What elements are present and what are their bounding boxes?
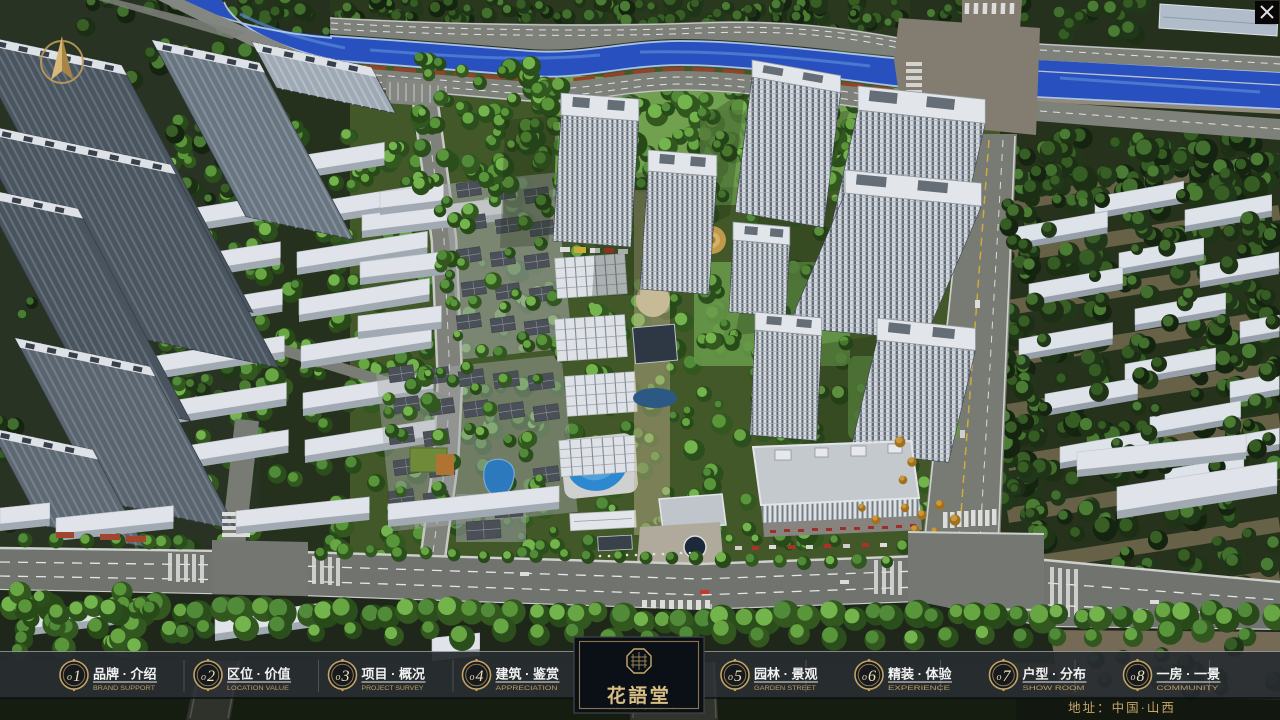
svg-text:F L O W E R C O U R T: F L O W E R C O U R T: [602, 706, 676, 711]
svg-text:COMMUNITY: COMMUNITY: [1157, 686, 1219, 692]
svg-text:LOCATION VALUE: LOCATION VALUE: [227, 686, 289, 692]
svg-text:o: o: [470, 672, 475, 683]
svg-text:3: 3: [341, 668, 350, 685]
svg-text:5: 5: [734, 668, 742, 685]
svg-text:建筑 · 鉴赏: 建筑 · 鉴赏: [496, 667, 560, 682]
svg-text:o: o: [862, 672, 867, 683]
svg-text:园林 · 景观: 园林 · 景观: [754, 667, 818, 682]
svg-text:APPRECIATION: APPRECIATION: [496, 686, 558, 692]
svg-text:PROJECT SURVEY: PROJECT SURVEY: [362, 686, 424, 692]
svg-text:项目 · 概况: 项目 · 概况: [362, 667, 426, 682]
svg-text:户型 · 分布: 户型 · 分布: [1023, 667, 1087, 682]
svg-text:o: o: [997, 672, 1002, 683]
svg-text:BRAND SUPPORT: BRAND SUPPORT: [93, 686, 155, 692]
svg-text:6: 6: [868, 668, 876, 685]
svg-text:8: 8: [1137, 668, 1145, 685]
svg-text:o: o: [67, 672, 72, 683]
svg-text:4: 4: [476, 668, 484, 685]
svg-text:GARDEN STREET: GARDEN STREET: [754, 686, 816, 692]
svg-text:花語堂: 花語堂: [607, 684, 672, 707]
svg-text:1: 1: [73, 668, 81, 685]
svg-text:o: o: [336, 672, 341, 683]
svg-text:7: 7: [1003, 668, 1012, 685]
svg-text:o: o: [201, 672, 206, 683]
svg-text:精装 · 体验: 精装 · 体验: [888, 667, 953, 682]
svg-text:EXPERIENCE: EXPERIENCE: [888, 686, 950, 692]
svg-text:2: 2: [207, 668, 215, 685]
svg-text:o: o: [1131, 672, 1136, 683]
svg-text:一房 · 一景: 一房 · 一景: [1157, 667, 1221, 682]
svg-text:地址：中国·山西: 地址：中国·山西: [1068, 700, 1176, 715]
svg-text:品牌 · 介绍: 品牌 · 介绍: [93, 667, 157, 682]
svg-text:o: o: [728, 672, 733, 683]
svg-text:区位 · 价值: 区位 · 价值: [227, 667, 291, 682]
svg-text:SHOW ROOM: SHOW ROOM: [1023, 686, 1085, 692]
